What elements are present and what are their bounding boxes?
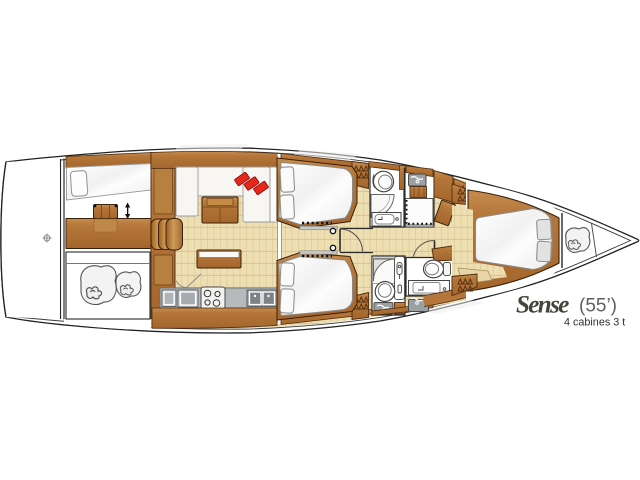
svg-text:4 cabines 3 t: 4 cabines 3 t	[564, 317, 625, 329]
svg-text:Sense: Sense	[516, 292, 569, 319]
svg-text:(55’): (55’)	[579, 296, 617, 317]
